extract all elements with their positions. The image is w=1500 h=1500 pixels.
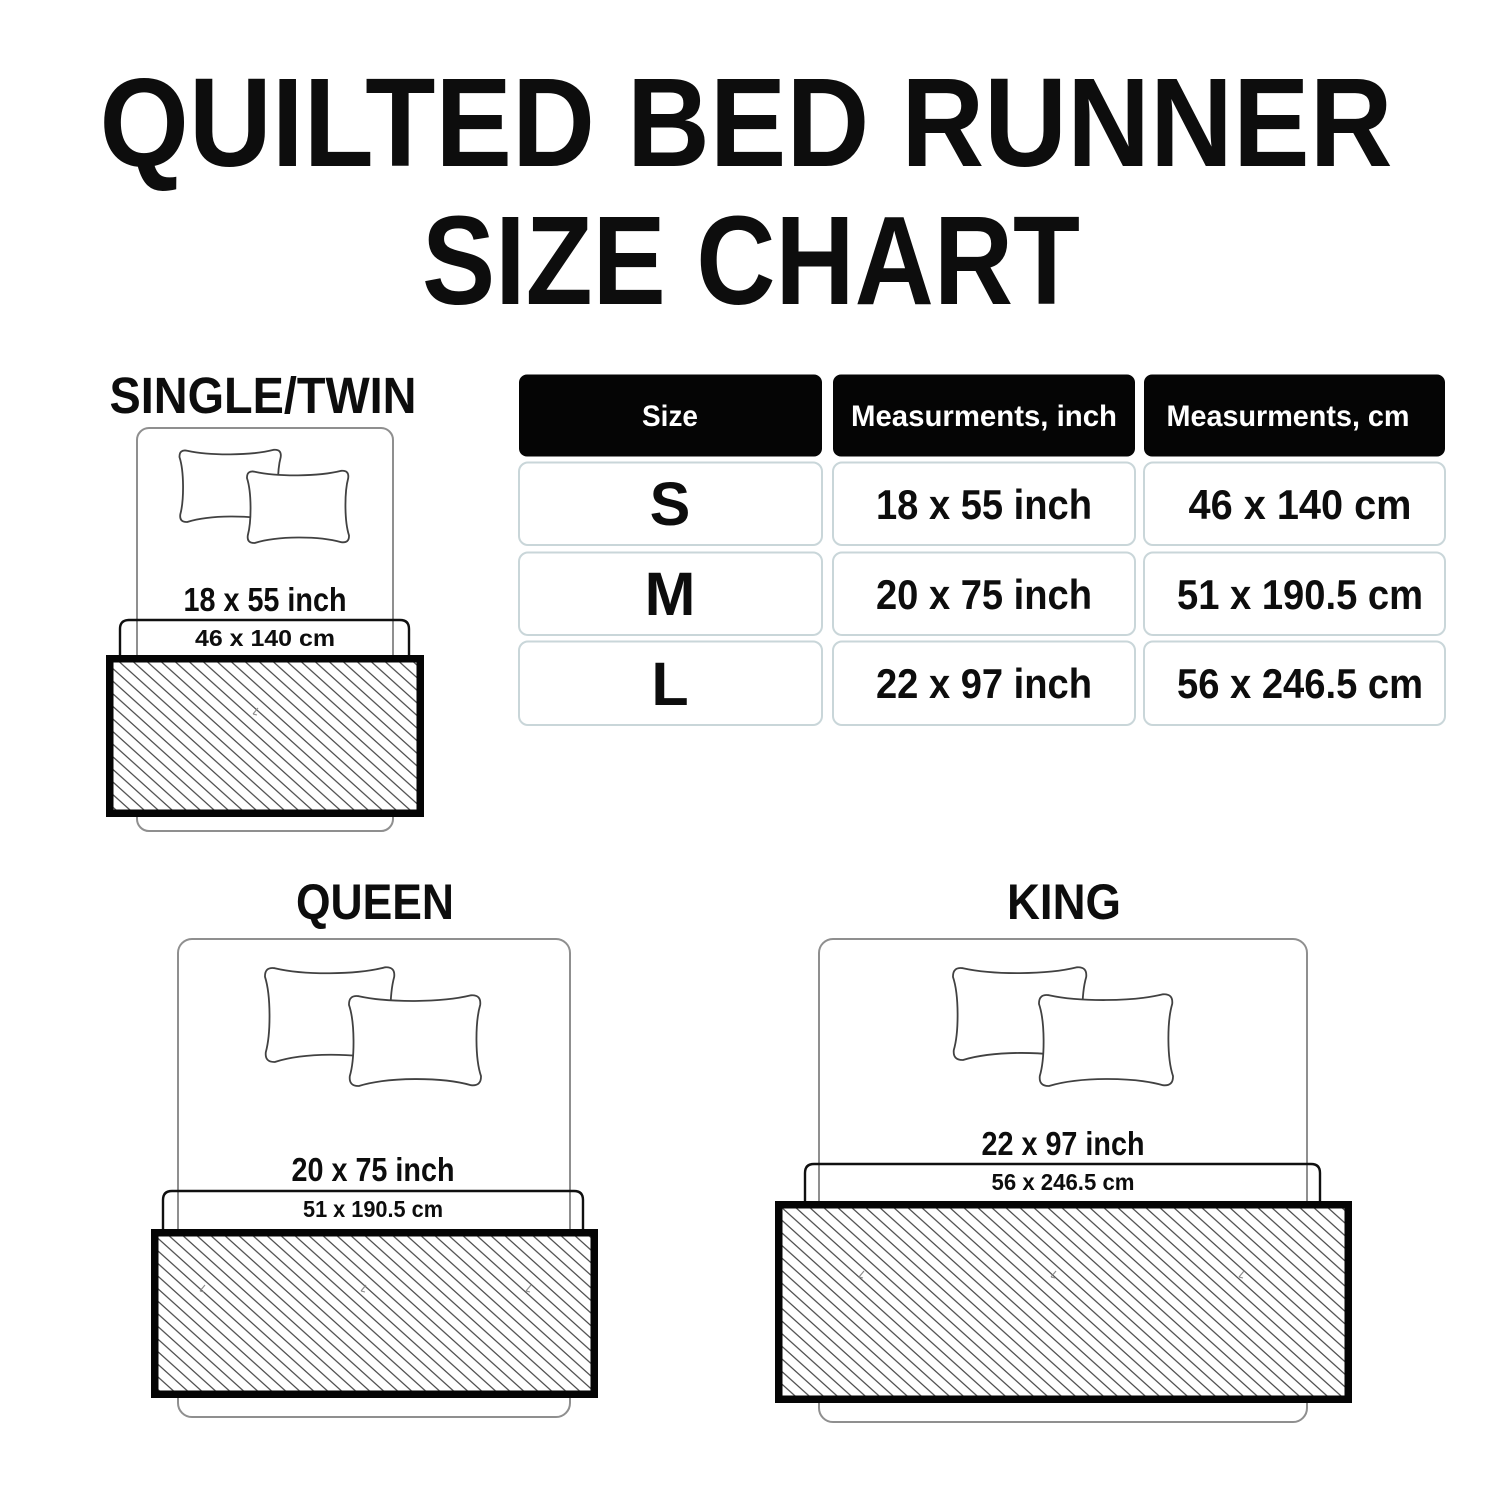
svg-text:SIZE CHART: SIZE CHART — [422, 190, 1080, 331]
svg-text:22 x 97 inch: 22 x 97 inch — [876, 660, 1092, 707]
svg-text:Measurments, cm: Measurments, cm — [1167, 400, 1410, 433]
svg-text:QUEEN: QUEEN — [296, 874, 454, 930]
svg-text:56 x 246.5 cm: 56 x 246.5 cm — [1177, 660, 1423, 707]
svg-text:51 x 190.5 cm: 51 x 190.5 cm — [303, 1196, 443, 1222]
svg-text:QUILTED BED RUNNER: QUILTED BED RUNNER — [100, 52, 1393, 193]
svg-text:18 x 55 inch: 18 x 55 inch — [184, 581, 347, 618]
svg-text:Size: Size — [642, 400, 698, 433]
svg-text:18 x 55 inch: 18 x 55 inch — [876, 481, 1092, 528]
svg-text:S: S — [650, 470, 691, 538]
svg-text:Measurments, inch: Measurments, inch — [851, 400, 1117, 433]
svg-text:20 x 75 inch: 20 x 75 inch — [292, 1151, 455, 1188]
svg-text:L: L — [651, 650, 688, 718]
svg-text:51 x 190.5 cm: 51 x 190.5 cm — [1177, 571, 1423, 618]
svg-text:M: M — [645, 560, 696, 628]
svg-text:SINGLE/TWIN: SINGLE/TWIN — [110, 367, 417, 424]
svg-text:KING: KING — [1007, 874, 1121, 930]
svg-text:20 x 75 inch: 20 x 75 inch — [876, 571, 1092, 618]
svg-text:56 x 246.5 cm: 56 x 246.5 cm — [992, 1169, 1135, 1195]
svg-text:46 x 140 cm: 46 x 140 cm — [195, 625, 335, 651]
svg-text:46 x 140 cm: 46 x 140 cm — [1189, 481, 1412, 528]
svg-text:22 x 97 inch: 22 x 97 inch — [982, 1125, 1145, 1162]
